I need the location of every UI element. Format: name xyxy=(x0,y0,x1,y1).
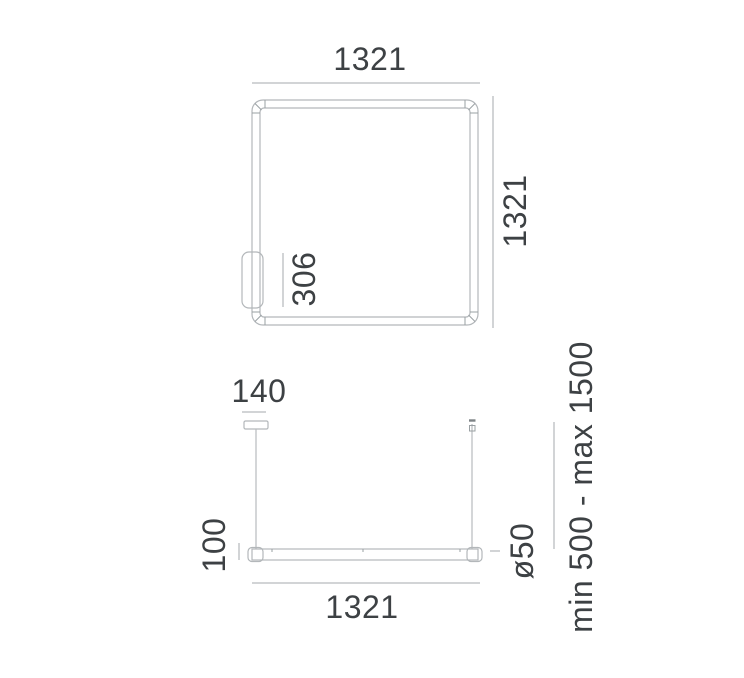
suspension-range-dimension-label: min 500 - max 1500 xyxy=(563,341,599,633)
light-bar-body xyxy=(252,549,478,560)
front-view: 140 100 1321 ø50 min 500 - max 1500 xyxy=(196,341,599,633)
driver-length-dimension-label: 306 xyxy=(286,252,322,307)
body-height-dimension-label: 100 xyxy=(196,518,232,573)
top-view: 1321 1321 306 xyxy=(242,41,533,328)
diameter-dimension-label: ø50 xyxy=(504,523,540,580)
top-height-dimension-label: 1321 xyxy=(497,174,533,247)
technical-dimension-drawing: 1321 1321 306 xyxy=(0,0,744,678)
canopy-width-dimension-label: 140 xyxy=(232,373,287,409)
bar-length-dimension-label: 1321 xyxy=(325,589,398,625)
canopy-outline xyxy=(244,421,268,429)
dimension-drawing-svg: 1321 1321 306 xyxy=(0,0,744,678)
top-width-dimension-label: 1321 xyxy=(333,41,406,77)
